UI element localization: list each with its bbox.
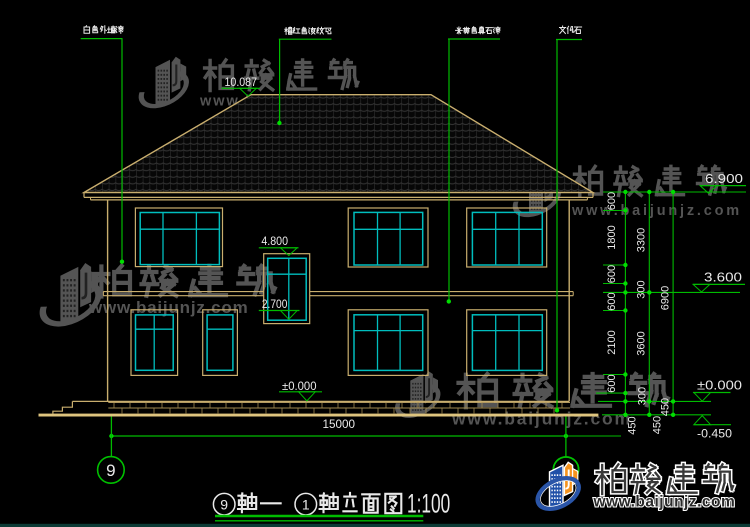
svg-text:www.baijunjz.com: www.baijunjz.com xyxy=(88,298,249,317)
svg-text:600: 600 xyxy=(606,192,618,210)
svg-text:600: 600 xyxy=(606,374,618,392)
svg-text:2100: 2100 xyxy=(606,330,618,354)
svg-text:1800: 1800 xyxy=(606,225,618,249)
svg-text:1: 1 xyxy=(302,496,310,512)
svg-text:www.baijunjz.com: www.baijunjz.com xyxy=(451,409,632,429)
svg-text:www.baijunjz.com: www.baijunjz.com xyxy=(571,203,742,219)
svg-text:450: 450 xyxy=(627,416,639,434)
svg-text:450: 450 xyxy=(660,398,672,416)
svg-text:www.baijunjz.com: www.baijunjz.com xyxy=(593,494,736,511)
svg-text:3600: 3600 xyxy=(636,331,648,355)
svg-text:1:100: 1:100 xyxy=(407,487,450,518)
svg-text:6900: 6900 xyxy=(660,286,672,310)
svg-text:9: 9 xyxy=(106,461,115,480)
svg-text:10.087: 10.087 xyxy=(225,75,258,89)
svg-text:15000: 15000 xyxy=(323,417,356,431)
svg-text:300: 300 xyxy=(637,387,649,405)
svg-text:9: 9 xyxy=(220,496,228,512)
svg-text:±0.000: ±0.000 xyxy=(282,381,317,393)
svg-text:300: 300 xyxy=(636,280,648,298)
svg-text:600: 600 xyxy=(606,292,618,310)
svg-text:±0.000: ±0.000 xyxy=(697,379,742,393)
svg-text:3300: 3300 xyxy=(636,228,648,252)
svg-text:2.700: 2.700 xyxy=(262,299,288,311)
svg-text:3.600: 3.600 xyxy=(704,271,742,285)
svg-text:-0.450: -0.450 xyxy=(697,428,732,440)
svg-text:450: 450 xyxy=(652,416,664,434)
svg-text:600: 600 xyxy=(606,265,618,283)
svg-text:6.900: 6.900 xyxy=(705,172,743,186)
svg-text:4.800: 4.800 xyxy=(261,236,288,248)
